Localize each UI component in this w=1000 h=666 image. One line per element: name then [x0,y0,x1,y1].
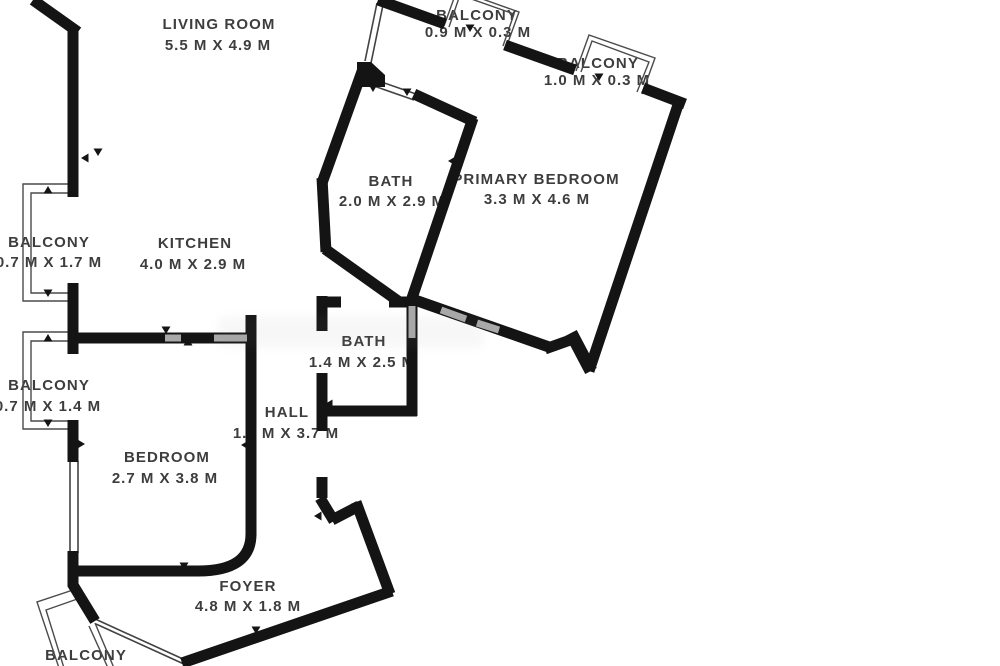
room-dimensions: 0.7 M X 1.7 M [0,254,102,271]
tick-mark [44,334,53,342]
window-line [365,3,377,61]
room-dimensions: 4.8 M X 1.8 M [195,598,301,615]
tick-mark [369,85,378,93]
room-dimensions: 3.3 M X 4.6 M [484,191,590,208]
floorplan-canvas: LIVING ROOM5.5 M X 4.9 MBALCONY0.9 M X 0… [0,0,1000,666]
room-dimensions: 2.0 M X 2.9 M [339,193,445,210]
wall-segment [320,498,334,521]
tick-mark [44,186,53,194]
room-dimensions: 4.0 M X 2.9 M [140,256,246,273]
tick-mark [314,512,322,521]
tick-mark [44,420,53,428]
room-label: BALCONY [8,377,90,394]
room-dimensions: 1.4 M X 2.5 M [309,354,415,371]
room-label: PRIMARY BEDROOM [452,171,619,188]
room-label: BEDROOM [124,449,210,466]
room-label: KITCHEN [158,235,232,252]
room-label: BALCONY [8,234,90,251]
wall-corner [357,62,385,87]
room-label: FOYER [219,578,276,595]
wall-segment [414,94,475,122]
wall-segment [378,0,445,24]
wall-segment [356,502,390,594]
wall-segment [589,99,680,371]
wall-segment [198,534,251,571]
wall-segment [73,551,95,621]
tick-mark [81,154,89,163]
room-label: BATH [369,173,414,190]
wall-segment [325,249,398,301]
room-label: LIVING ROOM [163,16,276,33]
room-label: HALL [265,404,309,421]
window-line [371,5,383,63]
tick-mark [94,149,103,157]
floorplan-drawing: LIVING ROOM5.5 M X 4.9 MBALCONY0.9 M X 0… [0,0,1000,666]
wall-segment [322,178,326,252]
room-dimensions: 0.7 M X 1.4 M [0,398,101,415]
room-dimensions: 5.5 M X 4.9 M [165,37,271,54]
watermark-smudge [218,316,484,348]
tick-mark [78,440,86,449]
room-dimensions: 2.7 M X 3.8 M [112,470,218,487]
